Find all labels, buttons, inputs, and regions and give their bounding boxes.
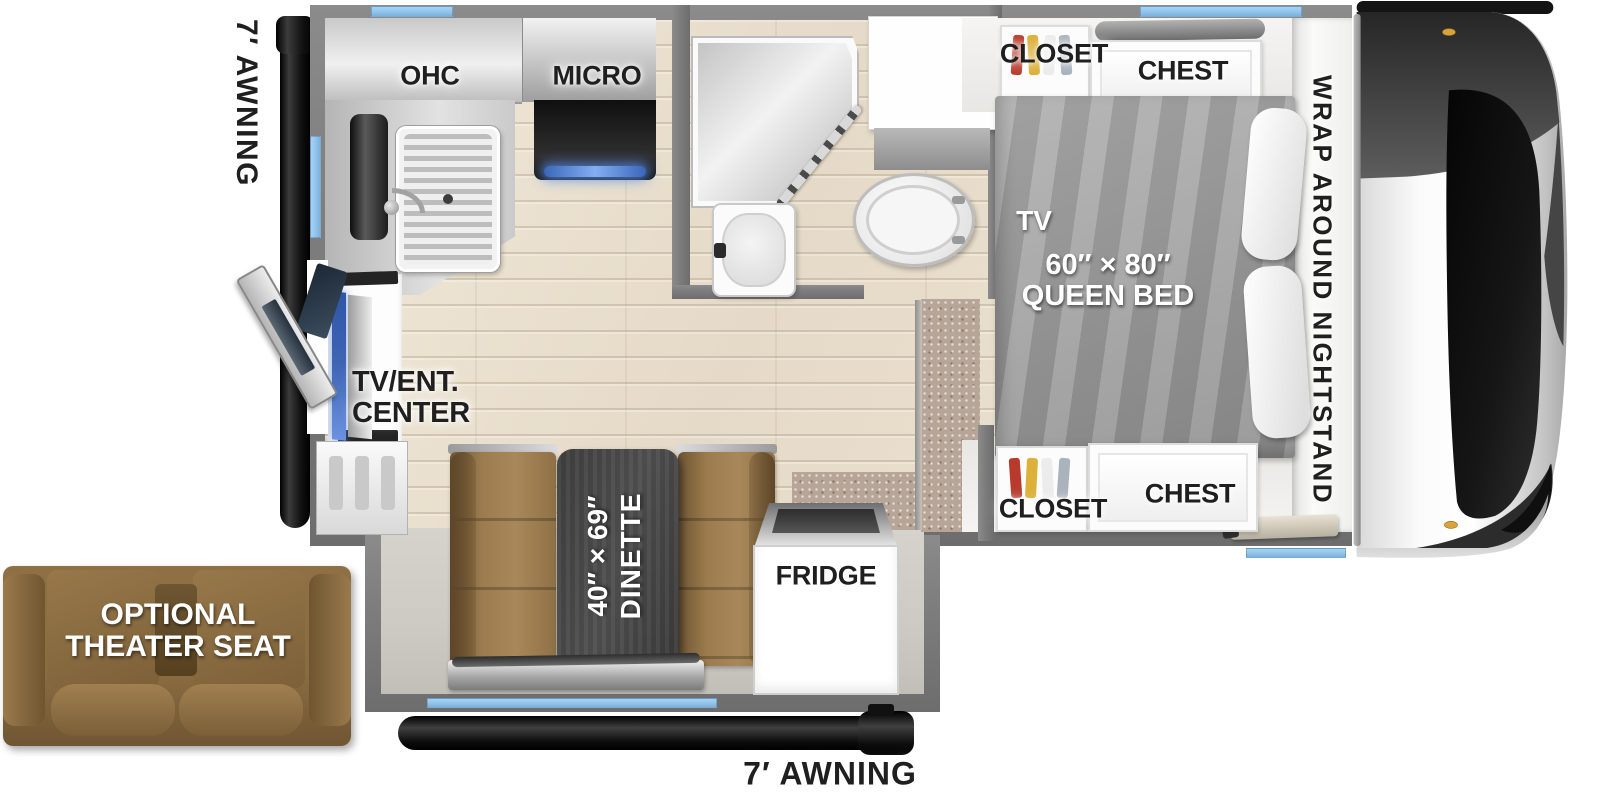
theater-line1: OPTIONAL (18, 599, 338, 631)
fridge-label: FRIDGE (776, 561, 877, 592)
hanging-clothes-icon (1057, 458, 1071, 499)
camper-floorplan: 7′ AWNING OHC MICRO CLOSET CHEST TV 60″ … (0, 0, 1600, 795)
toilet-hinge-top (952, 196, 965, 204)
bedroom-tv-label: TV (1016, 205, 1052, 237)
theater-line2: THEATER SEAT (18, 631, 338, 663)
water-heater (350, 114, 388, 240)
sink-drain (443, 194, 453, 204)
bedroom-divider-wall (978, 425, 994, 541)
bathroom-faucet (714, 243, 726, 258)
dinette-name-text: DINETTE (614, 493, 647, 620)
bottom-awning-label: 7′ AWNING (743, 756, 917, 793)
chest-bottom-label: CHEST (1145, 479, 1236, 510)
bedroom-shelf (1095, 19, 1265, 42)
tv-ent-line2: CENTER (352, 398, 470, 429)
theater-cushion-right (179, 684, 303, 736)
theater-cushion-left (51, 684, 175, 736)
dinette-size-text: 40″ × 69″ (581, 493, 614, 620)
hanging-clothes-icon (1025, 458, 1038, 499)
kitchen-window (371, 6, 453, 17)
bottom-awning-bracket (868, 704, 894, 716)
bathroom-shelf (874, 128, 990, 170)
queen-bed-label: 60″ × 80″ QUEEN BED (973, 250, 1243, 312)
step-edge (915, 300, 922, 530)
closet-bottom-label: CLOSET (999, 494, 1107, 525)
bathroom-left-wall (672, 5, 690, 299)
tv-ent-line1: TV/ENT. (352, 367, 470, 398)
front-cap (1350, 0, 1572, 560)
bedroom-top-window (1140, 6, 1302, 17)
left-side-window (310, 136, 321, 238)
toilet-lid (866, 185, 960, 255)
toilet-hinge-bottom (952, 236, 965, 244)
bedroom-bottom-window (1246, 548, 1346, 558)
left-awning-end-cap (276, 16, 314, 54)
micro-label: MICRO (553, 61, 642, 92)
range-burner-glow (544, 166, 646, 177)
left-awning-label: 7′ AWNING (229, 19, 263, 187)
dinette-window (427, 698, 717, 708)
dinette-label: 40″ × 69″ DINETTE (581, 493, 647, 620)
bed-size-text: 60″ × 80″ (973, 250, 1243, 281)
bathroom-sink-basin (722, 213, 786, 287)
left-awning-tube (280, 20, 310, 528)
theater-seat-label: OPTIONAL THEATER SEAT (18, 599, 338, 663)
fridge-vent-slot (772, 509, 880, 533)
bottom-awning-tube (398, 716, 890, 750)
hanging-clothes-icon (1041, 458, 1054, 499)
chest-top-label: CHEST (1138, 56, 1229, 87)
pillow (1242, 264, 1312, 440)
ohc-label: OHC (400, 61, 459, 92)
tv-ent-center-label: TV/ENT. CENTER (352, 367, 470, 429)
hanging-clothes-icon (1009, 458, 1023, 499)
dinette-bench-left-back (450, 452, 476, 666)
closet-top-label: CLOSET (1000, 39, 1108, 70)
bed-name-text: QUEEN BED (973, 281, 1243, 312)
nightstand-label: WRAP AROUND NIGHTSTAND (1307, 75, 1338, 505)
bottom-awning-end-cap (858, 711, 914, 755)
tv-ent-cabinet (316, 441, 408, 535)
